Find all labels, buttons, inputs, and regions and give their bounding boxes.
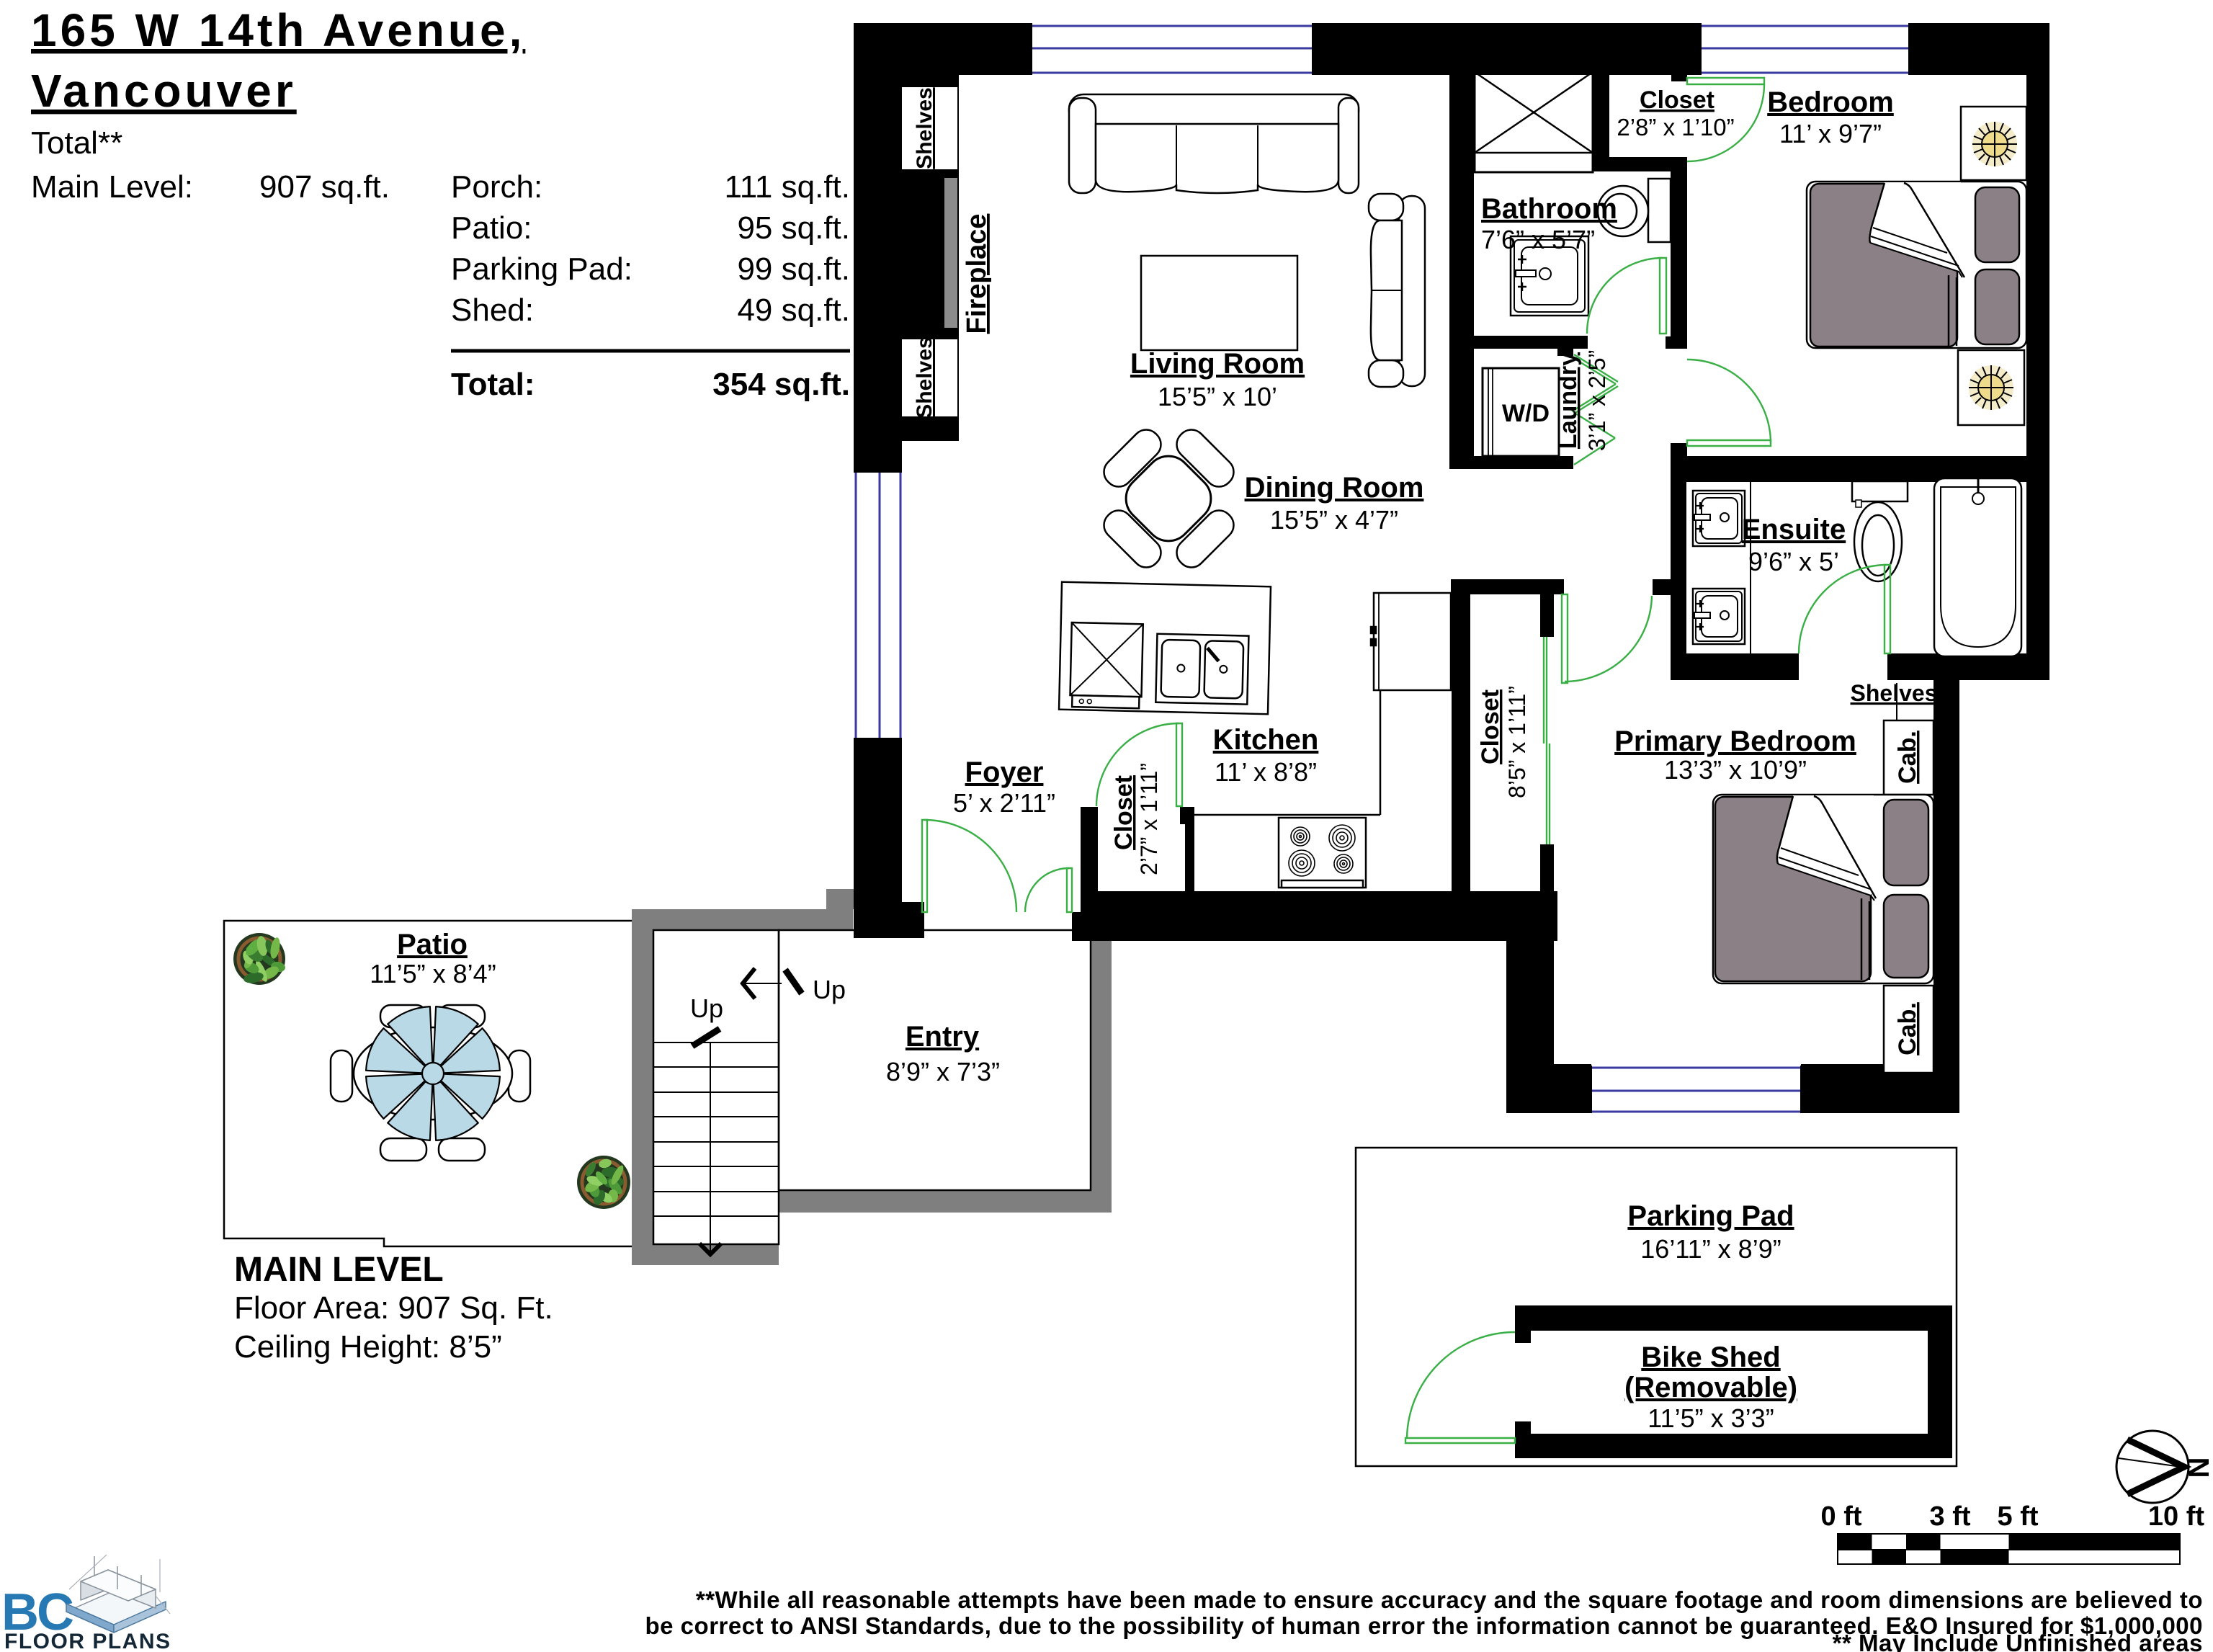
svg-text:MAIN LEVEL: MAIN LEVEL <box>234 1251 444 1289</box>
svg-text:Patio: Patio <box>397 929 468 960</box>
svg-text:Dining Room: Dining Room <box>1245 472 1424 504</box>
svg-text:Entry: Entry <box>906 1021 980 1053</box>
svg-text:Patio:: Patio: <box>451 210 532 246</box>
svg-text:111 sq.ft.: 111 sq.ft. <box>725 169 850 205</box>
svg-text:3 ft: 3 ft <box>1930 1501 1971 1532</box>
svg-text:Fireplace: Fireplace <box>962 214 992 334</box>
svg-text:Shelves: Shelves <box>913 87 936 169</box>
svg-text:N: N <box>2183 1457 2213 1478</box>
svg-text:16’11” x 8’9”: 16’11” x 8’9” <box>1640 1234 1781 1264</box>
svg-text:11’ x 8’8”: 11’ x 8’8” <box>1215 757 1317 787</box>
svg-text:Vancouver: Vancouver <box>31 65 297 117</box>
svg-text:Shelves: Shelves <box>1851 680 1938 706</box>
svg-text:15’5” x 4’7”: 15’5” x 4’7” <box>1270 505 1398 535</box>
svg-text:Shed:: Shed: <box>451 293 534 328</box>
svg-text:99 sq.ft.: 99 sq.ft. <box>737 251 850 287</box>
svg-text:7’6” x 5’7”: 7’6” x 5’7” <box>1481 225 1595 254</box>
svg-text:Ensuite: Ensuite <box>1742 514 1846 545</box>
svg-text:165 W 14th Avenue,: 165 W 14th Avenue, <box>31 4 525 56</box>
svg-text:Laundry: Laundry <box>1555 352 1582 449</box>
svg-text:Cab.: Cab. <box>1894 731 1921 784</box>
svg-text:Up: Up <box>813 975 846 1004</box>
svg-text:8’5” x 1’11”: 8’5” x 1’11” <box>1504 686 1530 798</box>
svg-text:Parking Pad:: Parking Pad: <box>451 251 632 287</box>
svg-text:11’5” x 8’4”: 11’5” x 8’4” <box>370 959 496 988</box>
svg-text:FLOOR PLANS: FLOOR PLANS <box>4 1630 171 1652</box>
svg-text:Shelves: Shelves <box>913 336 936 418</box>
svg-text:Kitchen: Kitchen <box>1213 724 1319 756</box>
svg-text:Closet: Closet <box>1640 86 1714 114</box>
svg-text:15’5” x 10’: 15’5” x 10’ <box>1158 382 1277 411</box>
svg-text:** May Include Unfinished area: ** May Include Unfinished areas <box>1833 1630 2203 1652</box>
svg-text:907 sq.ft.: 907 sq.ft. <box>259 169 390 205</box>
svg-text:11’ x 9’7”: 11’ x 9’7” <box>1779 119 1882 148</box>
svg-text:8’9” x 7’3”: 8’9” x 7’3” <box>886 1057 1000 1086</box>
svg-text:0 ft: 0 ft <box>1821 1501 1862 1532</box>
svg-text:95 sq.ft.: 95 sq.ft. <box>737 210 850 246</box>
svg-text:Bike Shed: Bike Shed <box>1641 1341 1780 1373</box>
svg-text:Main Level:: Main Level: <box>31 169 193 205</box>
svg-text:W/D: W/D <box>1502 400 1550 427</box>
svg-text:Floor Area: 907 Sq. Ft.: Floor Area: 907 Sq. Ft. <box>234 1290 553 1326</box>
svg-text:3’1” x 2’5”: 3’1” x 2’5” <box>1584 350 1610 452</box>
svg-text:Cab.: Cab. <box>1894 1002 1921 1055</box>
svg-text:Bedroom: Bedroom <box>1767 86 1894 118</box>
svg-text:Primary Bedroom: Primary Bedroom <box>1614 725 1856 757</box>
svg-text:**While all reasonable attempt: **While all reasonable attempts have bee… <box>696 1586 2203 1613</box>
svg-text:Foyer: Foyer <box>965 756 1044 788</box>
svg-text:49 sq.ft.: 49 sq.ft. <box>737 293 850 328</box>
svg-text:Closet: Closet <box>1477 689 1504 764</box>
svg-text:Living Room: Living Room <box>1130 348 1305 380</box>
svg-text:11’5” x 3’3”: 11’5” x 3’3” <box>1648 1403 1774 1433</box>
svg-text:5’ x 2’11”: 5’ x 2’11” <box>953 788 1055 818</box>
svg-text:Porch:: Porch: <box>451 169 542 205</box>
svg-text:Closet: Closet <box>1110 775 1137 850</box>
svg-text:5 ft: 5 ft <box>1998 1501 2039 1532</box>
svg-text:Bathroom: Bathroom <box>1481 193 1617 225</box>
svg-text:2’7” x 1’11”: 2’7” x 1’11” <box>1136 763 1162 875</box>
svg-text:(Removable): (Removable) <box>1624 1372 1797 1403</box>
svg-text:Total:: Total: <box>451 367 535 402</box>
svg-text:354 sq.ft.: 354 sq.ft. <box>712 367 850 402</box>
svg-text:13’3” x 10’9”: 13’3” x 10’9” <box>1664 755 1807 785</box>
svg-text:Parking Pad: Parking Pad <box>1627 1200 1794 1232</box>
svg-text:9’6” x 5’: 9’6” x 5’ <box>1748 547 1839 576</box>
svg-text:Ceiling Height: 8’5”: Ceiling Height: 8’5” <box>234 1329 502 1365</box>
svg-text:10 ft: 10 ft <box>2148 1501 2204 1532</box>
svg-text:2’8” x 1’10”: 2’8” x 1’10” <box>1617 114 1734 140</box>
svg-text:Total**: Total** <box>31 125 122 161</box>
svg-text:Up: Up <box>690 994 723 1023</box>
